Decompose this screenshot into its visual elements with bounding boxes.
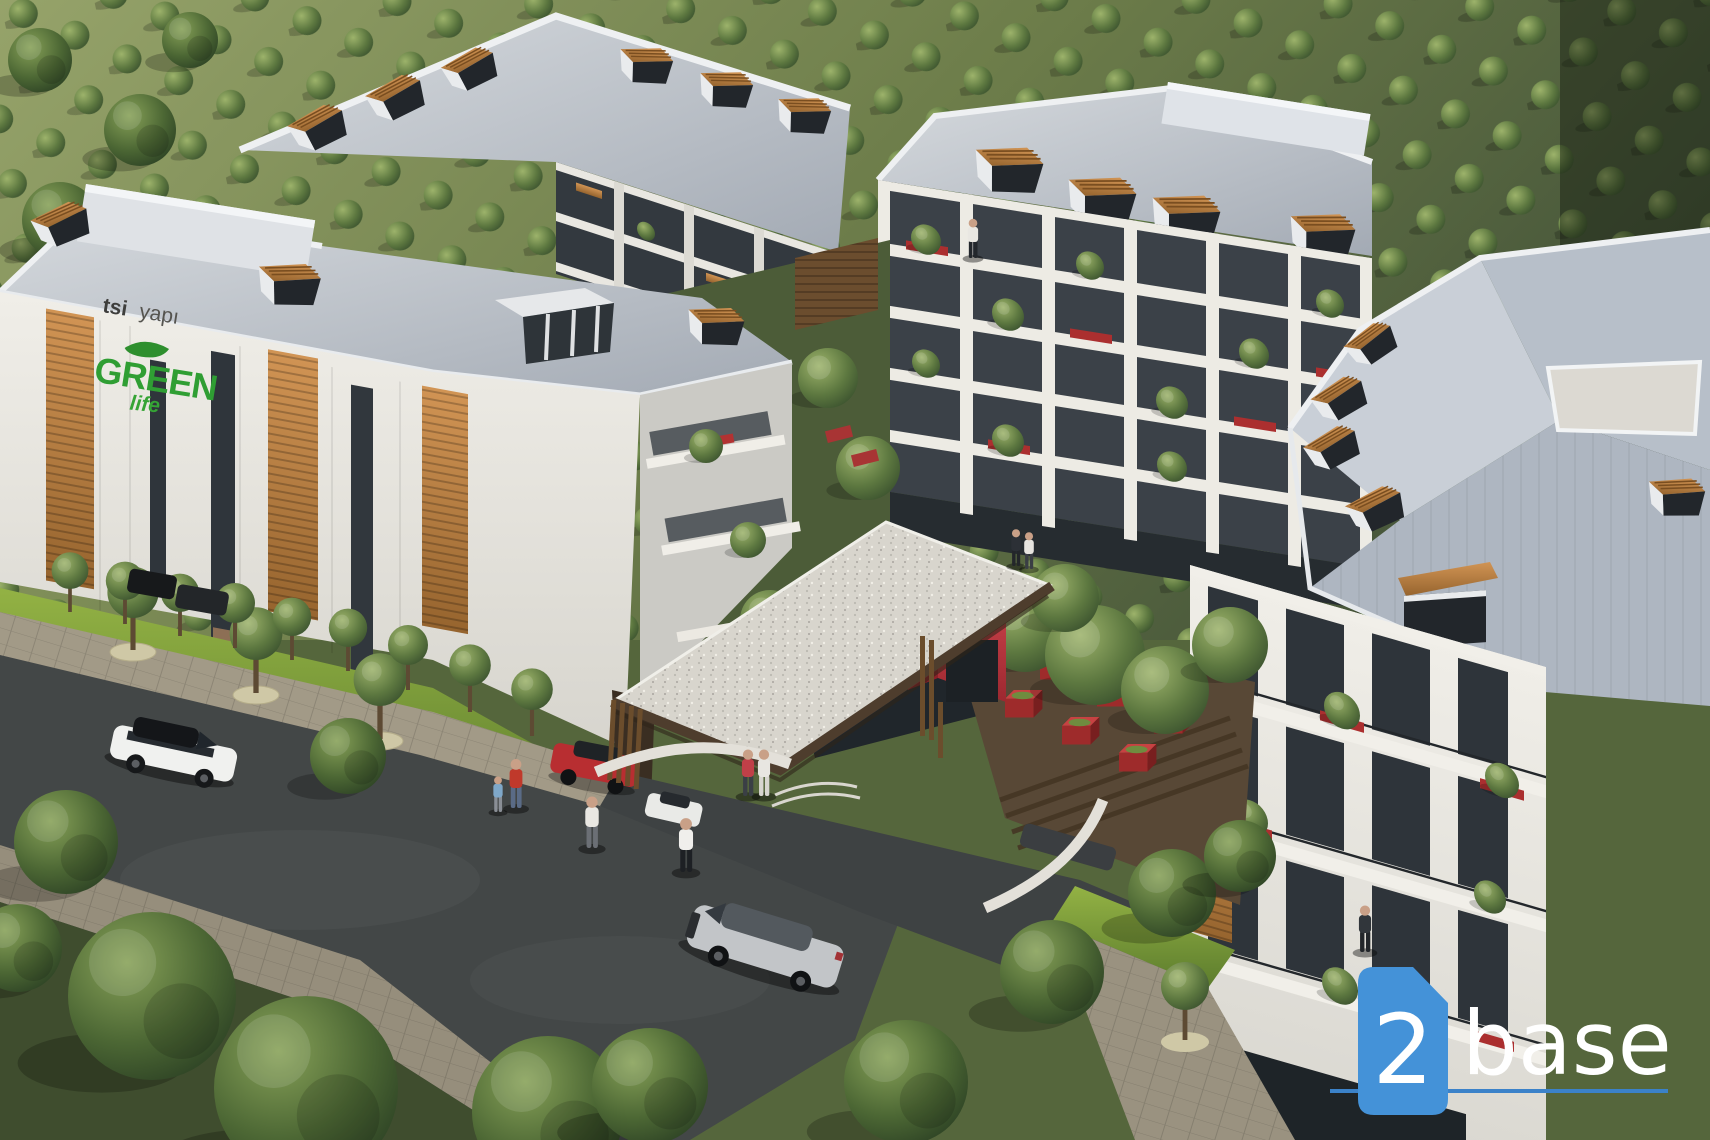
developer-name-bold: tsi [101,294,129,321]
project-tagline: life [129,392,162,418]
render-scene: tsi yapı GREEN life [0,0,1710,1140]
logo-number: 2 [1372,994,1433,1106]
building-middle [878,82,1372,610]
logo-wordmark: base [1462,1000,1672,1088]
entry-steps [772,783,860,806]
building-right-roof-deck [1548,362,1700,434]
2base-logo-mark: 2 [1358,967,1448,1115]
